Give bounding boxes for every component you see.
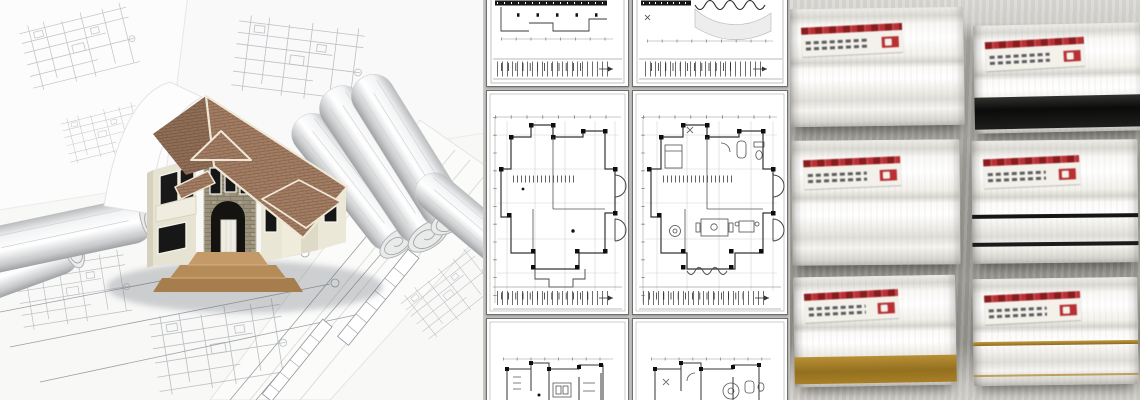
moulding-sample [793, 275, 957, 388]
brand-label [803, 156, 902, 189]
front-door [221, 220, 236, 252]
brand-label [984, 291, 1081, 325]
plan-sheet [632, 318, 788, 400]
dm-brand-logo [880, 168, 897, 180]
label-text-area [803, 163, 901, 189]
moulding-sample [790, 7, 965, 127]
label-text-area [984, 298, 1081, 325]
brand-label [804, 289, 899, 323]
brand-label [801, 22, 903, 56]
moulding-sample [791, 139, 960, 265]
dm-brand-logo [1059, 304, 1077, 316]
stair-detail [663, 373, 764, 399]
plan-sheet [486, 90, 629, 315]
moulding-sample [973, 22, 1140, 134]
dm-brand-logo [878, 302, 896, 314]
plan-sheet [632, 90, 788, 315]
dm-brand-logo [882, 35, 900, 47]
label-fine-print [987, 170, 1046, 182]
banner-collage [0, 0, 1140, 400]
moulding-sample [971, 139, 1138, 264]
label-fine-print [809, 305, 866, 317]
dm-brand-logo [1063, 50, 1081, 62]
label-text-area [805, 296, 900, 323]
dm-brand-logo [1058, 168, 1075, 180]
brand-label [985, 37, 1085, 71]
lower-window [158, 222, 186, 254]
house-blueprints-photo [0, 0, 483, 400]
plan-sheet [486, 0, 629, 87]
label-fine-print [807, 171, 866, 183]
plan-sheet [486, 318, 629, 400]
moulding-samples-photo [790, 0, 1140, 400]
plan-sheet [632, 0, 788, 87]
brand-label [983, 155, 1080, 188]
label-text-area [985, 44, 1085, 71]
label-fine-print [806, 38, 868, 50]
label-fine-print [989, 52, 1049, 64]
house-scene [0, 0, 483, 400]
floorplan-sheet-grid [483, 0, 790, 400]
label-text-area [983, 162, 1080, 188]
moulding-sample [972, 277, 1138, 386]
label-text-area [801, 29, 903, 56]
label-fine-print [988, 306, 1046, 318]
